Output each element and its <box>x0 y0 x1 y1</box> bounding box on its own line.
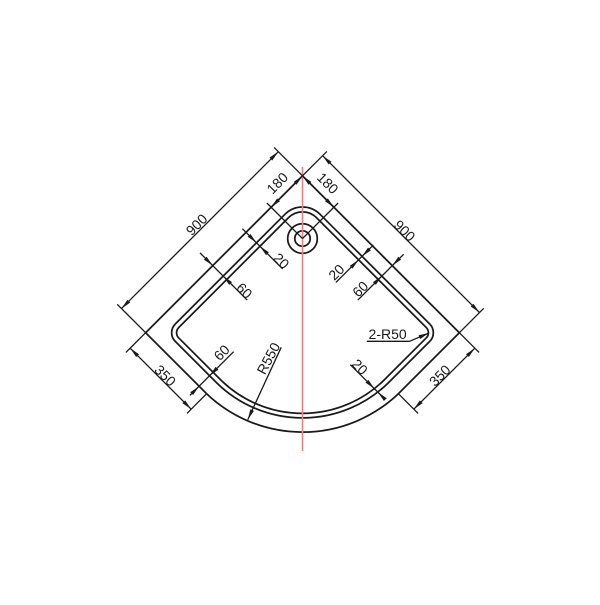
svg-text:2-R50: 2-R50 <box>369 326 407 342</box>
